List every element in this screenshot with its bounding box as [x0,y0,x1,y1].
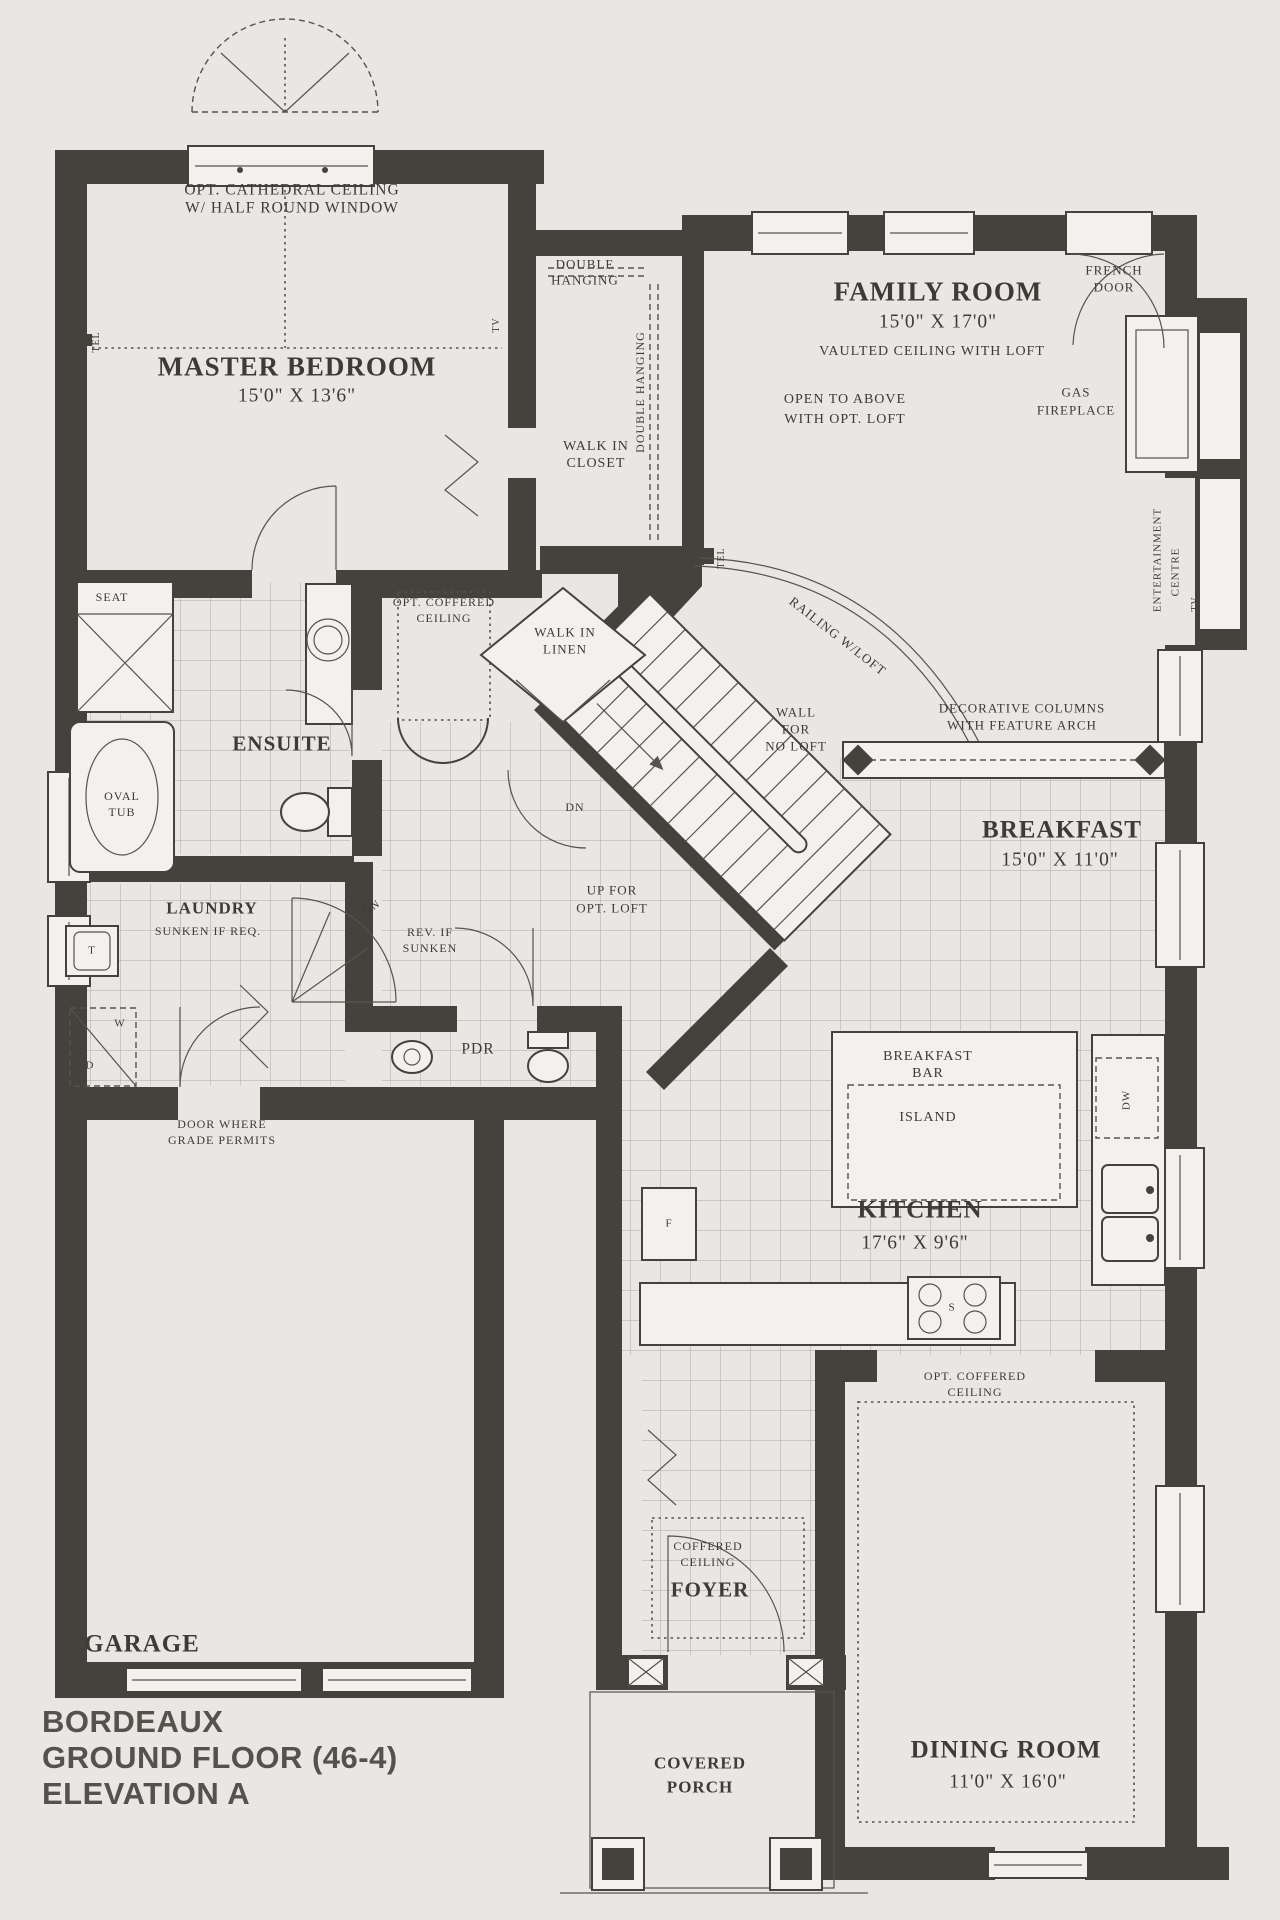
wall-no-loft-line1: WALL [776,706,816,719]
laundry-label: LAUNDRY [166,900,257,917]
dryer-label: D [86,1061,95,1072]
gas-fireplace-line2: FIREPLACE [1037,404,1115,417]
wall-no-loft-line3: NO LOFT [765,740,827,753]
open-to-above-line1: OPEN TO ABOVE [784,393,906,407]
master-bedroom-label: MASTER BEDROOM [158,354,437,381]
entertainment-line2: CENTRE [1171,548,1182,597]
double-hanging-line2: HANGING [551,274,619,287]
kitchen-dims: 17'6" X 9'6" [861,1233,969,1253]
dining-room-dims: 11'0" X 16'0" [949,1772,1067,1792]
dining-coffered-line1: OPT. COFFERED [924,1370,1026,1382]
hall-coffered-line1: OPT. COFFERED [393,596,495,608]
stove-label: S [948,1303,955,1314]
decorative-columns-line2: WITH FEATURE ARCH [947,719,1097,732]
master-bedroom-dims: 15'0" X 13'6" [238,386,356,406]
up-opt-loft-line1: UP FOR [587,884,638,897]
floor-plan: .w{fill:#45413d;stroke:none} .f{fill:#f2… [0,0,1280,1920]
kitchen-label: KITCHEN [857,1198,982,1223]
french-door-line1: FRENCH [1085,264,1142,277]
foyer-coffered-line1: COFFERED [673,1540,742,1552]
gas-fireplace-line1: GAS [1061,386,1090,399]
family-room-dims: 15'0" X 17'0" [879,312,997,332]
foyer-label: FOYER [671,1580,750,1601]
breakfast-bar-line2: BAR [912,1067,944,1081]
master-tv-label: TV [492,317,502,332]
oval-tub-line2: TUB [109,806,136,818]
walk-in-closet-line1: WALK IN [563,440,629,454]
grade-door-line1: DOOR WHERE [177,1118,266,1130]
hall-coffered-line2: CEILING [417,612,472,624]
laundry-tub-label: T [88,946,96,957]
breakfast-label: BREAKFAST [982,818,1142,843]
title-model: BORDEAUX [42,1706,223,1737]
open-to-above-line2: WITH OPT. LOFT [784,413,905,427]
walk-in-closet-line2: CLOSET [567,457,626,471]
foyer-coffered-line2: CEILING [681,1556,736,1568]
rev-if-sunken-line1: REV. IF [407,926,453,938]
ensuite-label: ENSUITE [232,734,331,755]
grade-door-line2: GRADE PERMITS [168,1134,276,1146]
wall-no-loft-line2: FOR [782,723,810,736]
garage-label: GARAGE [84,1632,200,1657]
fridge-label: F [665,1219,672,1230]
walk-in-linen-line1: WALK IN [534,626,596,639]
stairs-dn-label: DN [565,801,584,813]
cathedral-note-line1: OPT. CATHEDRAL CEILING [184,182,399,198]
island-label: ISLAND [899,1111,956,1125]
dining-room-label: DINING ROOM [911,1738,1102,1763]
entertainment-line1: ENTERTAINMENT [1153,508,1164,612]
family-room-label: FAMILY ROOM [834,279,1043,306]
entertainment-tv-label: TV [1191,596,1201,611]
rev-if-sunken-line2: SUNKEN [403,942,458,954]
master-tel-label: TEL [92,331,102,352]
dishwasher-label: DW [1122,1090,1133,1110]
french-door-line2: DOOR [1094,281,1135,294]
title-floor: GROUND FLOOR (46-4) [42,1742,398,1773]
cathedral-note-line2: W/ HALF ROUND WINDOW [185,200,399,216]
shower-seat-label: SEAT [96,591,129,603]
closet-tel-label: TEL [717,547,727,568]
dining-coffered-line2: CEILING [948,1386,1003,1398]
double-hanging-vertical: DOUBLE HANGING [634,331,646,453]
decorative-columns-line1: DECORATIVE COLUMNS [939,702,1105,715]
laundry-sunken-note: SUNKEN IF REQ. [155,925,261,937]
breakfast-dims: 15'0" X 11'0" [1001,850,1119,870]
breakfast-bar-line1: BREAKFAST [883,1050,973,1064]
walk-in-linen-line2: LINEN [543,643,587,656]
vaulted-ceiling-note: VAULTED CEILING WITH LOFT [819,345,1045,359]
covered-porch-line1: COVERED [654,1755,746,1772]
title-elevation: ELEVATION A [42,1778,250,1809]
oval-tub-line1: OVAL [104,790,140,802]
up-opt-loft-line2: OPT. LOFT [576,902,648,915]
powder-room-label: PDR [461,1041,494,1057]
washer-label: W [114,1019,125,1030]
double-hanging-line1: DOUBLE [556,258,615,271]
covered-porch-line2: PORCH [667,1779,733,1796]
